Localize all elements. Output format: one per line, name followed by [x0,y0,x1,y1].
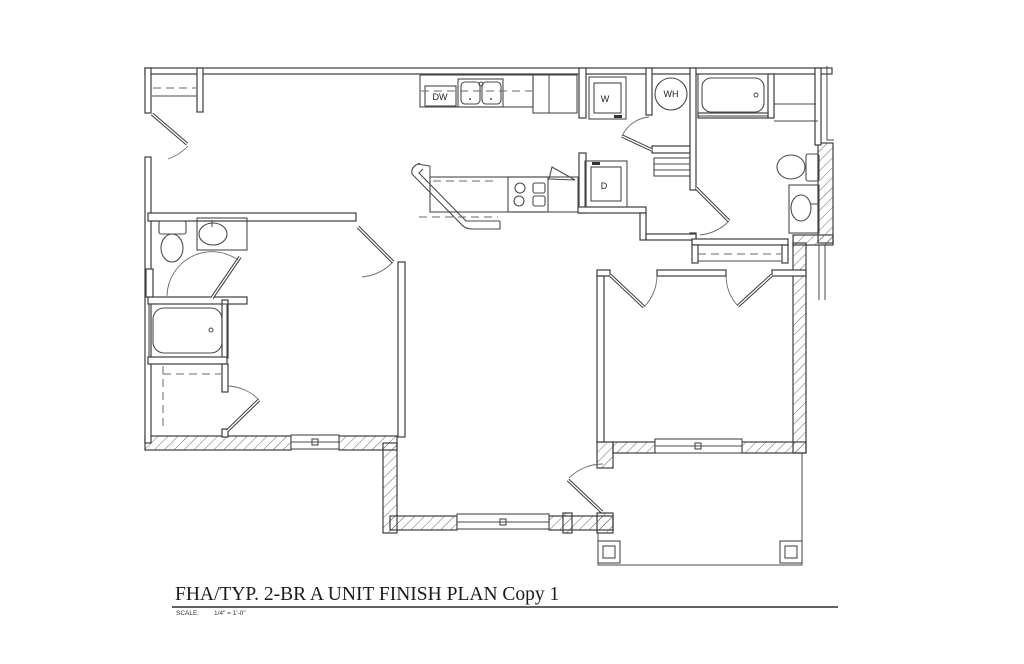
kitchen-sink-icon [458,79,503,107]
bathroom1-door [167,252,240,298]
plan-title: FHA/TYP. 2-BR A UNIT FINISH PLAN Copy 1 [175,584,559,605]
title-block: FHA/TYP. 2-BR A UNIT FINISH PLAN Copy 1 … [172,584,838,617]
water-heater-icon: WH [655,78,687,110]
floor-plan-sheet: DW [0,0,1024,664]
bathtub-1-icon [149,304,227,357]
scale-value: 1/4" = 1'-0" [214,610,246,617]
bedroom1-closet-door [227,386,259,431]
mechanical-closet-door [622,117,652,150]
bedroom2-closet-door [726,275,772,306]
patio [598,453,802,565]
toilet-1-icon [159,221,186,262]
bedroom2-entry-door [610,275,657,307]
kitchen-peninsula [430,167,578,212]
bathtub-2-icon [698,74,768,116]
toilet-2-icon [777,154,819,181]
exterior-walls [145,143,833,533]
patio-door [568,464,603,512]
dishwasher: DW [425,86,456,106]
dryer-label: D [601,181,608,191]
bathroom-1 [149,218,247,357]
bathroom2-door [696,188,729,235]
floor-plan-drawing: DW [0,0,1024,664]
water-heater-label: WH [664,89,679,99]
bedroom1-window [291,435,339,449]
bedroom2-closet [698,254,781,261]
range-stove-icon [508,177,548,212]
range-hood-mark [549,167,575,180]
vanity-sink-1-icon [197,218,247,250]
entry-closet [152,88,197,96]
kitchen: DW [412,75,578,229]
washer-icon: W [589,77,626,119]
dryer-icon: D [585,161,627,207]
refrigerator [533,75,577,113]
closet-shelf-lines [152,88,781,430]
bedroom2-window [655,439,742,453]
dishwasher-label: DW [433,92,448,102]
vanity-sink-2-icon [789,185,819,233]
washer-label: W [601,94,610,104]
patio-column-right [780,541,802,563]
bedroom1-door [358,227,393,277]
breakfast-bar [412,163,500,229]
bedroom1-closet [163,366,221,430]
patio-column-left [598,541,620,563]
mechanical-shelf [654,158,690,176]
scale-label: SCALE: [176,610,199,617]
living-room-window [457,514,549,529]
entry-door [152,114,188,159]
